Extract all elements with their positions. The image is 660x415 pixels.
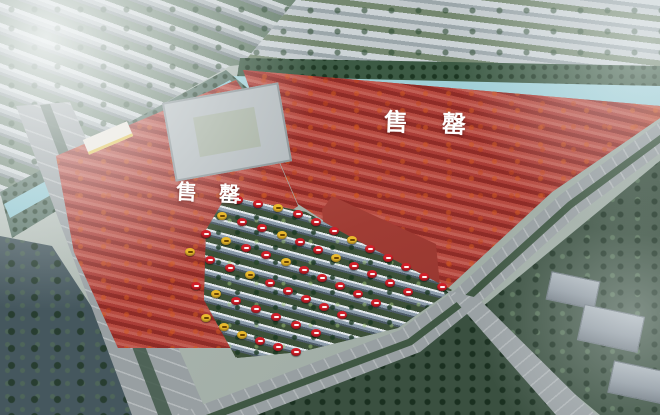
building-availability-marker[interactable] (331, 254, 341, 262)
building-availability-marker[interactable] (403, 288, 413, 296)
building-availability-marker[interactable] (347, 236, 357, 244)
building-availability-marker[interactable] (419, 273, 429, 281)
building-availability-marker[interactable] (353, 290, 363, 298)
sold-out-label-west: 售罄 (175, 176, 262, 210)
building-availability-marker[interactable] (281, 258, 291, 266)
building-availability-marker[interactable] (251, 305, 261, 313)
building-availability-marker[interactable] (191, 282, 201, 290)
building-availability-marker[interactable] (219, 323, 229, 331)
building-availability-marker[interactable] (237, 218, 247, 226)
building-availability-marker[interactable] (257, 224, 267, 232)
building-availability-marker[interactable] (317, 274, 327, 282)
building-availability-marker[interactable] (231, 297, 241, 305)
building-availability-marker[interactable] (337, 311, 347, 319)
building-availability-marker[interactable] (265, 279, 275, 287)
building-availability-marker[interactable] (283, 287, 293, 295)
markers-layer (0, 0, 660, 415)
building-availability-marker[interactable] (371, 299, 381, 307)
building-availability-marker[interactable] (225, 264, 235, 272)
building-availability-marker[interactable] (311, 218, 321, 226)
building-availability-marker[interactable] (367, 270, 377, 278)
building-availability-marker[interactable] (271, 313, 281, 321)
building-availability-marker[interactable] (335, 282, 345, 290)
building-availability-marker[interactable] (277, 231, 287, 239)
building-availability-marker[interactable] (383, 254, 393, 262)
building-availability-marker[interactable] (205, 256, 215, 264)
building-availability-marker[interactable] (385, 279, 395, 287)
building-availability-marker[interactable] (241, 244, 251, 252)
sold-out-label-east: 售罄 (383, 102, 500, 141)
building-availability-marker[interactable] (201, 230, 211, 238)
building-availability-marker[interactable] (295, 238, 305, 246)
building-availability-marker[interactable] (301, 295, 311, 303)
building-availability-marker[interactable] (319, 303, 329, 311)
building-availability-marker[interactable] (401, 263, 411, 271)
building-availability-marker[interactable] (313, 246, 323, 254)
masterplan-aerial-view: 售罄 售罄 (0, 0, 660, 415)
building-availability-marker[interactable] (273, 343, 283, 351)
building-availability-marker[interactable] (221, 237, 231, 245)
building-availability-marker[interactable] (185, 248, 195, 256)
building-availability-marker[interactable] (293, 210, 303, 218)
building-availability-marker[interactable] (365, 245, 375, 253)
building-availability-marker[interactable] (311, 329, 321, 337)
building-availability-marker[interactable] (255, 337, 265, 345)
building-availability-marker[interactable] (273, 204, 283, 212)
building-availability-marker[interactable] (299, 266, 309, 274)
building-availability-marker[interactable] (349, 262, 359, 270)
building-availability-marker[interactable] (237, 331, 247, 339)
building-availability-marker[interactable] (291, 321, 301, 329)
building-availability-marker[interactable] (201, 314, 211, 322)
building-availability-marker[interactable] (245, 271, 255, 279)
building-availability-marker[interactable] (291, 348, 301, 356)
building-availability-marker[interactable] (437, 283, 447, 291)
building-availability-marker[interactable] (217, 212, 227, 220)
building-availability-marker[interactable] (329, 227, 339, 235)
building-availability-marker[interactable] (261, 251, 271, 259)
building-availability-marker[interactable] (211, 290, 221, 298)
